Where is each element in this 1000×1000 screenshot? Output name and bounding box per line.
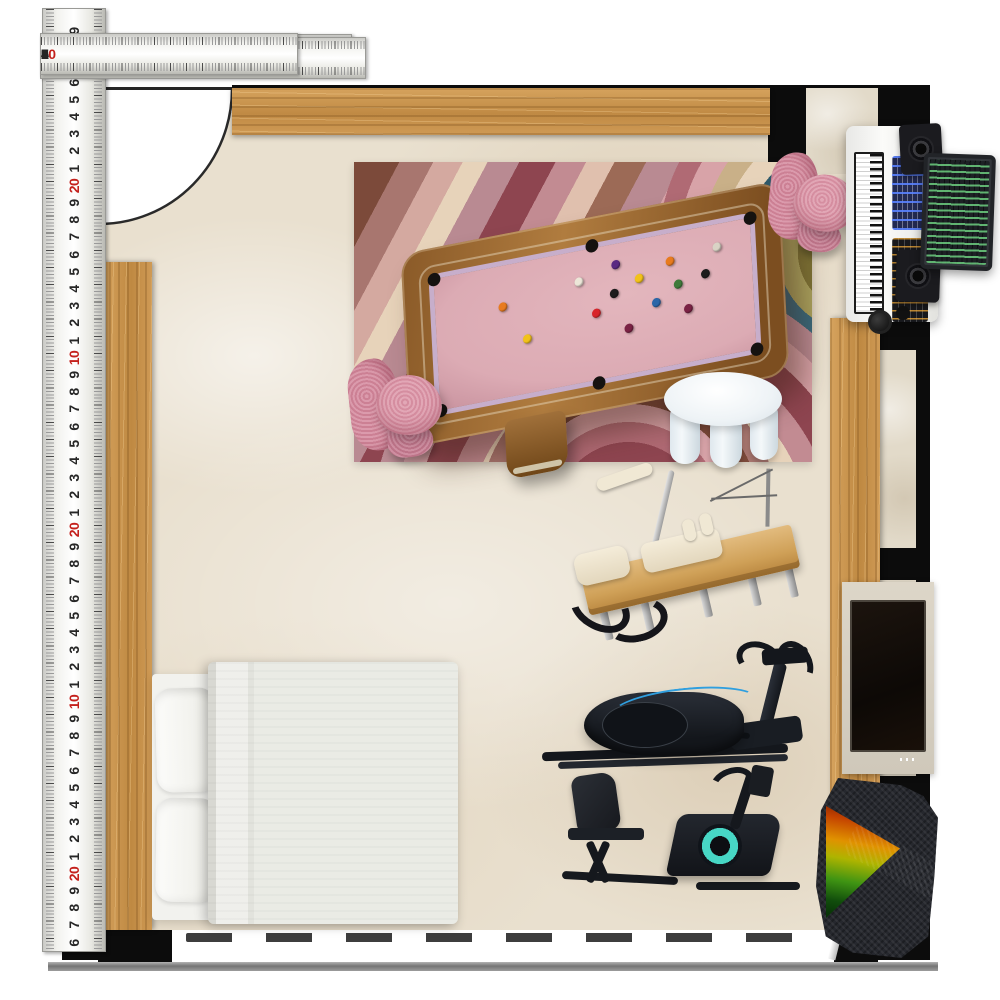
wall-bottom-left-corner — [98, 930, 174, 966]
reformer-leg — [747, 576, 762, 607]
bike-stabilizer — [696, 882, 800, 890]
piano-keyboard — [854, 152, 884, 314]
billiard-ball — [523, 333, 532, 344]
pool-table-pocket — [743, 210, 756, 226]
wall-tv[interactable] — [842, 582, 934, 774]
reformer-leg — [784, 567, 799, 598]
billiard-ball — [610, 288, 619, 299]
door-with-swing-arc[interactable] — [96, 86, 234, 228]
music-workstation[interactable] — [846, 116, 996, 332]
reformer-leg — [699, 587, 714, 618]
daw-monitor — [920, 153, 996, 271]
billiard-ball — [665, 256, 674, 267]
recumbent-exercise-bike[interactable] — [560, 768, 808, 910]
ruler-ticks — [94, 9, 102, 951]
door-swing-area — [99, 89, 232, 224]
bike-seat-pan — [568, 828, 644, 840]
tv-screen — [850, 600, 926, 752]
daw-screen — [926, 159, 990, 265]
table-top — [664, 372, 782, 426]
stone-ledge-right-upper — [878, 350, 916, 548]
ruler-number: 6 — [66, 912, 82, 974]
ruler-ticks — [46, 9, 54, 951]
billiard-ball — [634, 273, 643, 284]
volume-knob — [896, 306, 910, 320]
pilates-reformer[interactable] — [570, 474, 810, 656]
billiard-ball — [592, 308, 601, 319]
elliptical-console — [761, 646, 808, 665]
duvet — [208, 662, 458, 924]
wood-board-top[interactable] — [232, 88, 770, 135]
bike-backrest — [570, 771, 622, 835]
door-closed-line — [96, 87, 232, 90]
white-side-table[interactable] — [664, 368, 784, 468]
billiard-ball — [673, 279, 682, 290]
bike-stabilizer — [562, 871, 678, 885]
practice-net[interactable] — [816, 778, 938, 958]
bottom-window-dashed-line — [186, 933, 824, 942]
wood-board-left[interactable] — [100, 262, 152, 930]
reformer-riser-post — [765, 469, 770, 527]
pink-swivel-chair-1[interactable] — [344, 345, 456, 473]
floor-plan-canvas: 9876543212098765432110987654321209876543… — [0, 0, 1000, 1000]
billiard-ball — [611, 259, 620, 270]
billiard-ball — [684, 303, 693, 314]
billiard-ball — [624, 322, 633, 333]
ruler-ticks — [41, 63, 297, 71]
billiard-ball — [652, 297, 661, 308]
bed[interactable] — [150, 662, 460, 930]
pool-table-pocket — [427, 272, 440, 288]
bike-console — [748, 764, 775, 797]
ruler-number: 6 — [41, 46, 48, 62]
left-ruler: 9876543212098765432110987654321209876543… — [42, 8, 106, 952]
top-ruler-segment: 12345678910123456 — [40, 33, 298, 75]
exterior-threshold-line — [48, 962, 938, 971]
billiard-ball — [499, 302, 508, 313]
pool-table-leg — [504, 409, 568, 479]
pool-table-pocket — [750, 341, 763, 357]
billiard-ball — [574, 277, 583, 288]
pool-table-pocket — [592, 375, 605, 391]
billiard-ball — [701, 268, 710, 279]
bike-flywheel — [698, 824, 742, 868]
elliptical-trainer[interactable] — [540, 636, 804, 788]
top-ruler: 1234567891012345678920123456789101234567… — [40, 34, 940, 76]
tv-indicator-dots — [900, 758, 916, 761]
billiard-ball — [713, 242, 722, 253]
monitor-knob — [868, 310, 892, 334]
pool-table-pocket — [585, 238, 598, 254]
